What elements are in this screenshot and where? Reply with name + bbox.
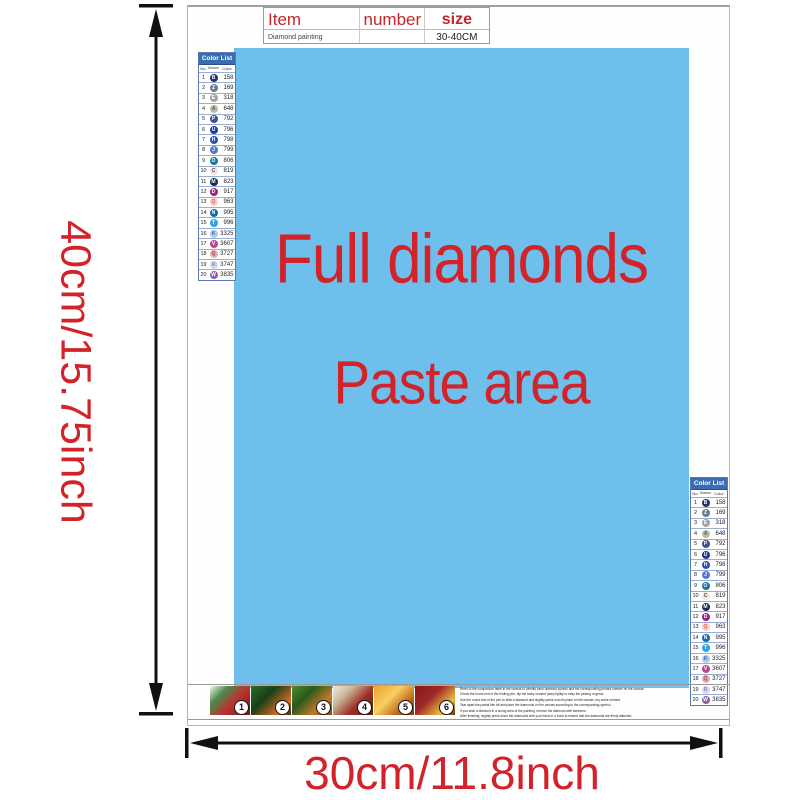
step-thumbnail-4: 4 xyxy=(333,686,373,715)
color-code: 799 xyxy=(219,147,235,153)
color-list-row: 5P792 xyxy=(691,539,727,549)
diamond-symbol-icon: K xyxy=(208,230,219,238)
color-number: 3 xyxy=(199,95,208,101)
color-code: 798 xyxy=(711,562,727,568)
bottom-strip-divider-bottom xyxy=(188,719,729,720)
diamond-symbol-icon: U xyxy=(208,126,219,134)
color-list-row: 10C819 xyxy=(199,166,235,176)
color-list-row: 15T996 xyxy=(199,217,235,227)
color-list-row: 11M823 xyxy=(199,176,235,186)
color-list-row: 10C819 xyxy=(691,591,727,601)
color-number: 7 xyxy=(199,137,208,143)
diamond-symbol-icon: V xyxy=(700,665,711,673)
color-list-title: Color List xyxy=(691,478,727,490)
color-number: 20 xyxy=(199,272,208,278)
diamond-symbol-icon: H xyxy=(208,136,219,144)
diamond-symbol-icon: E xyxy=(208,94,219,102)
color-list-row: 9O806 xyxy=(199,155,235,165)
instruction-line: Use the round end of the pen to stick a … xyxy=(460,698,702,702)
color-number: 1 xyxy=(691,500,700,506)
color-list-row: 16K3325 xyxy=(691,653,727,663)
color-number: 8 xyxy=(199,147,208,153)
color-code: 792 xyxy=(711,541,727,547)
color-code: 823 xyxy=(219,179,235,185)
color-list-row: 1B158 xyxy=(691,497,727,507)
color-code: 963 xyxy=(711,624,727,630)
color-code: 3727 xyxy=(711,676,727,682)
color-list-row: 44648 xyxy=(199,103,235,113)
color-number: 19 xyxy=(199,262,208,268)
color-code: 995 xyxy=(219,210,235,216)
color-code: 169 xyxy=(711,510,727,516)
color-list-row: 1B158 xyxy=(199,72,235,82)
spec-value-number xyxy=(359,29,424,43)
step-number-badge: 3 xyxy=(316,700,331,715)
diamond-symbol-icon: K xyxy=(700,655,711,663)
spec-header-size: size xyxy=(424,8,489,29)
color-number: 1 xyxy=(199,75,208,81)
diamond-symbol-icon: R xyxy=(208,261,219,269)
step-thumbnails: 123456 xyxy=(210,686,455,715)
color-number: 3 xyxy=(691,520,700,526)
color-number: 13 xyxy=(691,624,700,630)
color-list-row: 3E318 xyxy=(199,93,235,103)
color-code: 798 xyxy=(219,137,235,143)
color-list-columns: No. Diamond Color xyxy=(199,65,235,72)
diamond-symbol-icon: W xyxy=(208,271,219,279)
step-thumbnail-6: 6 xyxy=(415,686,455,715)
instructions-text: Refer to the comparison table in the can… xyxy=(460,687,702,719)
color-code: 819 xyxy=(219,168,235,174)
color-number: 4 xyxy=(199,106,208,112)
color-number: 12 xyxy=(691,614,700,620)
diamond-symbol-icon: P xyxy=(208,115,219,123)
diamond-symbol-icon: M xyxy=(208,178,219,186)
color-number: 10 xyxy=(199,168,208,174)
color-number: 16 xyxy=(691,656,700,662)
color-code: 648 xyxy=(711,531,727,537)
color-code: 158 xyxy=(219,75,235,81)
paste-area: Full diamonds Paste area xyxy=(234,48,689,688)
color-code: 996 xyxy=(711,645,727,651)
color-list-row: 16K3325 xyxy=(199,228,235,238)
color-code: 3325 xyxy=(711,656,727,662)
spec-value-item: Diamond painting xyxy=(264,29,359,43)
instruction-line: Refer to the comparison table in the can… xyxy=(460,687,702,691)
color-code: 648 xyxy=(219,106,235,112)
color-code: 796 xyxy=(711,552,727,558)
color-number: 9 xyxy=(691,583,700,589)
color-list-row: 20W3835 xyxy=(199,269,235,279)
diamond-symbol-icon: Q xyxy=(208,250,219,258)
diamond-symbol-icon: D xyxy=(700,613,711,621)
color-number: 16 xyxy=(199,231,208,237)
color-code: 169 xyxy=(219,85,235,91)
color-code: 3747 xyxy=(219,262,235,268)
color-list-row: 12D917 xyxy=(691,611,727,621)
color-list-row: 2Z169 xyxy=(691,507,727,517)
color-number: 4 xyxy=(691,531,700,537)
color-list-title: Color List xyxy=(199,53,235,65)
vertical-dimension-arrow xyxy=(138,2,174,718)
color-number: 6 xyxy=(691,552,700,558)
diamond-symbol-icon: P xyxy=(700,540,711,548)
color-number: 12 xyxy=(199,189,208,195)
color-code: 318 xyxy=(711,520,727,526)
diamond-symbol-icon: J xyxy=(700,571,711,579)
diamond-symbol-icon: O xyxy=(700,582,711,590)
diamond-symbol-icon: V xyxy=(208,240,219,248)
step-number-badge: 2 xyxy=(275,700,290,715)
instruction-line: Check the round end of the finding pen, … xyxy=(460,692,702,696)
color-code: 917 xyxy=(219,189,235,195)
color-number: 14 xyxy=(691,635,700,641)
diamond-symbol-icon: Z xyxy=(208,84,219,92)
color-list-row: 17V3607 xyxy=(691,663,727,673)
color-code: 806 xyxy=(219,158,235,164)
instruction-line: After finishing, slightly press down the… xyxy=(460,714,702,718)
step-number-badge: 6 xyxy=(439,700,454,715)
color-list-row: 2Z169 xyxy=(199,82,235,92)
diamond-symbol-icon: C xyxy=(700,592,711,600)
diamond-symbol-icon: M xyxy=(700,603,711,611)
color-code: 3835 xyxy=(711,697,727,703)
color-number: 2 xyxy=(691,510,700,516)
color-code: 3835 xyxy=(219,272,235,278)
color-list-row: 13Q963 xyxy=(199,197,235,207)
color-number: 5 xyxy=(199,116,208,122)
diamond-symbol-icon: C xyxy=(208,167,219,175)
diamond-symbol-icon: B xyxy=(700,499,711,507)
diamond-symbol-icon: O xyxy=(208,157,219,165)
color-list-row: 5P792 xyxy=(199,114,235,124)
color-list-row: 8J799 xyxy=(691,570,727,580)
color-number: 18 xyxy=(691,676,700,682)
color-list-row: 7H798 xyxy=(199,134,235,144)
color-list-row: 9O806 xyxy=(691,580,727,590)
color-list-row: 6U796 xyxy=(691,549,727,559)
diamond-symbol-icon: 4 xyxy=(700,530,711,538)
step-thumbnail-2: 2 xyxy=(251,686,291,715)
diamond-symbol-icon: Q xyxy=(208,198,219,206)
color-list-row: 3E318 xyxy=(691,518,727,528)
width-dimension-label: 30cm/11.8inch xyxy=(304,746,600,800)
diamond-symbol-icon: D xyxy=(208,188,219,196)
color-list-row: 12D917 xyxy=(199,186,235,196)
color-number: 9 xyxy=(199,158,208,164)
color-code: 792 xyxy=(219,116,235,122)
color-list-col-color: Color xyxy=(219,65,235,72)
color-code: 3607 xyxy=(711,666,727,672)
color-number: 10 xyxy=(691,593,700,599)
step-thumbnail-1: 1 xyxy=(210,686,250,715)
color-code: 796 xyxy=(219,127,235,133)
color-list-row: 11M823 xyxy=(691,601,727,611)
diamond-symbol-icon: E xyxy=(700,519,711,527)
diamond-symbol-icon: 4 xyxy=(208,105,219,113)
diamond-symbol-icon: T xyxy=(700,644,711,652)
diamond-symbol-icon: Z xyxy=(700,509,711,517)
color-list-col-sym: Diamond xyxy=(208,65,219,72)
color-number: 17 xyxy=(199,241,208,247)
paste-area-title-line1: Full diamonds xyxy=(234,220,689,300)
diamond-symbol-icon: H xyxy=(700,561,711,569)
instruction-line: If you stick a diamond in a wrong area o… xyxy=(460,709,702,713)
item-spec-table: Item number size Diamond painting 30-40C… xyxy=(263,7,490,44)
color-number: 6 xyxy=(199,127,208,133)
paste-area-title-line2: Paste area xyxy=(234,346,689,418)
color-list-row: 13Q963 xyxy=(691,622,727,632)
diamond-symbol-icon: N xyxy=(700,634,711,642)
color-list-right: Color List No. Diamond Color 1B1582Z1693… xyxy=(690,477,728,706)
color-number: 13 xyxy=(199,199,208,205)
color-code: 158 xyxy=(711,500,727,506)
step-number-badge: 4 xyxy=(357,700,372,715)
color-code: 3325 xyxy=(219,231,235,237)
diamond-symbol-icon: Q xyxy=(700,675,711,683)
color-list-col-color: Color xyxy=(711,490,727,497)
color-list-row: 14N995 xyxy=(199,207,235,217)
step-thumbnail-5: 5 xyxy=(374,686,414,715)
color-list-left: Color List No. Diamond Color 1B1582Z1693… xyxy=(198,52,236,281)
product-spec-image: { "colors": { "accent_red": "#d2232a", "… xyxy=(0,0,800,800)
color-number: 7 xyxy=(691,562,700,568)
color-number: 11 xyxy=(691,604,700,610)
color-number: 15 xyxy=(199,220,208,226)
color-list-row: 17V3607 xyxy=(199,238,235,248)
color-code: 318 xyxy=(219,95,235,101)
color-number: 8 xyxy=(691,572,700,578)
color-number: 11 xyxy=(199,179,208,185)
color-number: 15 xyxy=(691,645,700,651)
color-list-row: 19R3747 xyxy=(199,259,235,269)
color-list-row: 18Q3727 xyxy=(199,249,235,259)
color-code: 963 xyxy=(219,199,235,205)
color-list-row: 7H798 xyxy=(691,559,727,569)
color-number: 2 xyxy=(199,85,208,91)
diamond-symbol-icon: Q xyxy=(700,623,711,631)
color-number: 5 xyxy=(691,541,700,547)
diamond-symbol-icon: B xyxy=(208,74,219,82)
step-thumbnail-3: 3 xyxy=(292,686,332,715)
color-number: 14 xyxy=(199,210,208,216)
color-code: 3727 xyxy=(219,251,235,257)
color-code: 995 xyxy=(711,635,727,641)
color-code: 806 xyxy=(711,583,727,589)
color-list-row: 14N995 xyxy=(691,632,727,642)
instruction-line: Tear apart the partial film bit and plac… xyxy=(460,703,702,707)
color-code: 819 xyxy=(711,593,727,599)
color-code: 996 xyxy=(219,220,235,226)
color-code: 3607 xyxy=(219,241,235,247)
color-number: 18 xyxy=(199,251,208,257)
color-list-row: 8J799 xyxy=(199,145,235,155)
color-list-row: 44648 xyxy=(691,528,727,538)
color-list-col-no: No. xyxy=(199,65,208,72)
color-number: 17 xyxy=(691,666,700,672)
spec-header-item: Item xyxy=(264,8,359,29)
color-list-col-sym: Diamond xyxy=(700,490,711,497)
color-code: 823 xyxy=(711,604,727,610)
step-number-badge: 5 xyxy=(398,700,413,715)
color-code: 799 xyxy=(711,572,727,578)
color-list-row: 15T996 xyxy=(691,642,727,652)
color-code: 917 xyxy=(711,614,727,620)
color-list-row: 6U796 xyxy=(199,124,235,134)
color-list-col-no: No. xyxy=(691,490,700,497)
height-dimension-label: 40cm/15.75inch xyxy=(51,220,100,524)
spec-header-number: number xyxy=(359,8,424,29)
spec-value-size: 30-40CM xyxy=(424,29,489,43)
color-code: 3747 xyxy=(711,687,727,693)
diamond-symbol-icon: N xyxy=(208,209,219,217)
diamond-symbol-icon: U xyxy=(700,551,711,559)
color-list-columns: No. Diamond Color xyxy=(691,490,727,497)
bottom-strip-divider-top xyxy=(188,684,729,685)
canvas-sheet: Item number size Diamond painting 30-40C… xyxy=(187,5,730,726)
diamond-symbol-icon: T xyxy=(208,219,219,227)
diamond-symbol-icon: J xyxy=(208,146,219,154)
step-number-badge: 1 xyxy=(234,700,249,715)
color-list-row: 18Q3727 xyxy=(691,674,727,684)
